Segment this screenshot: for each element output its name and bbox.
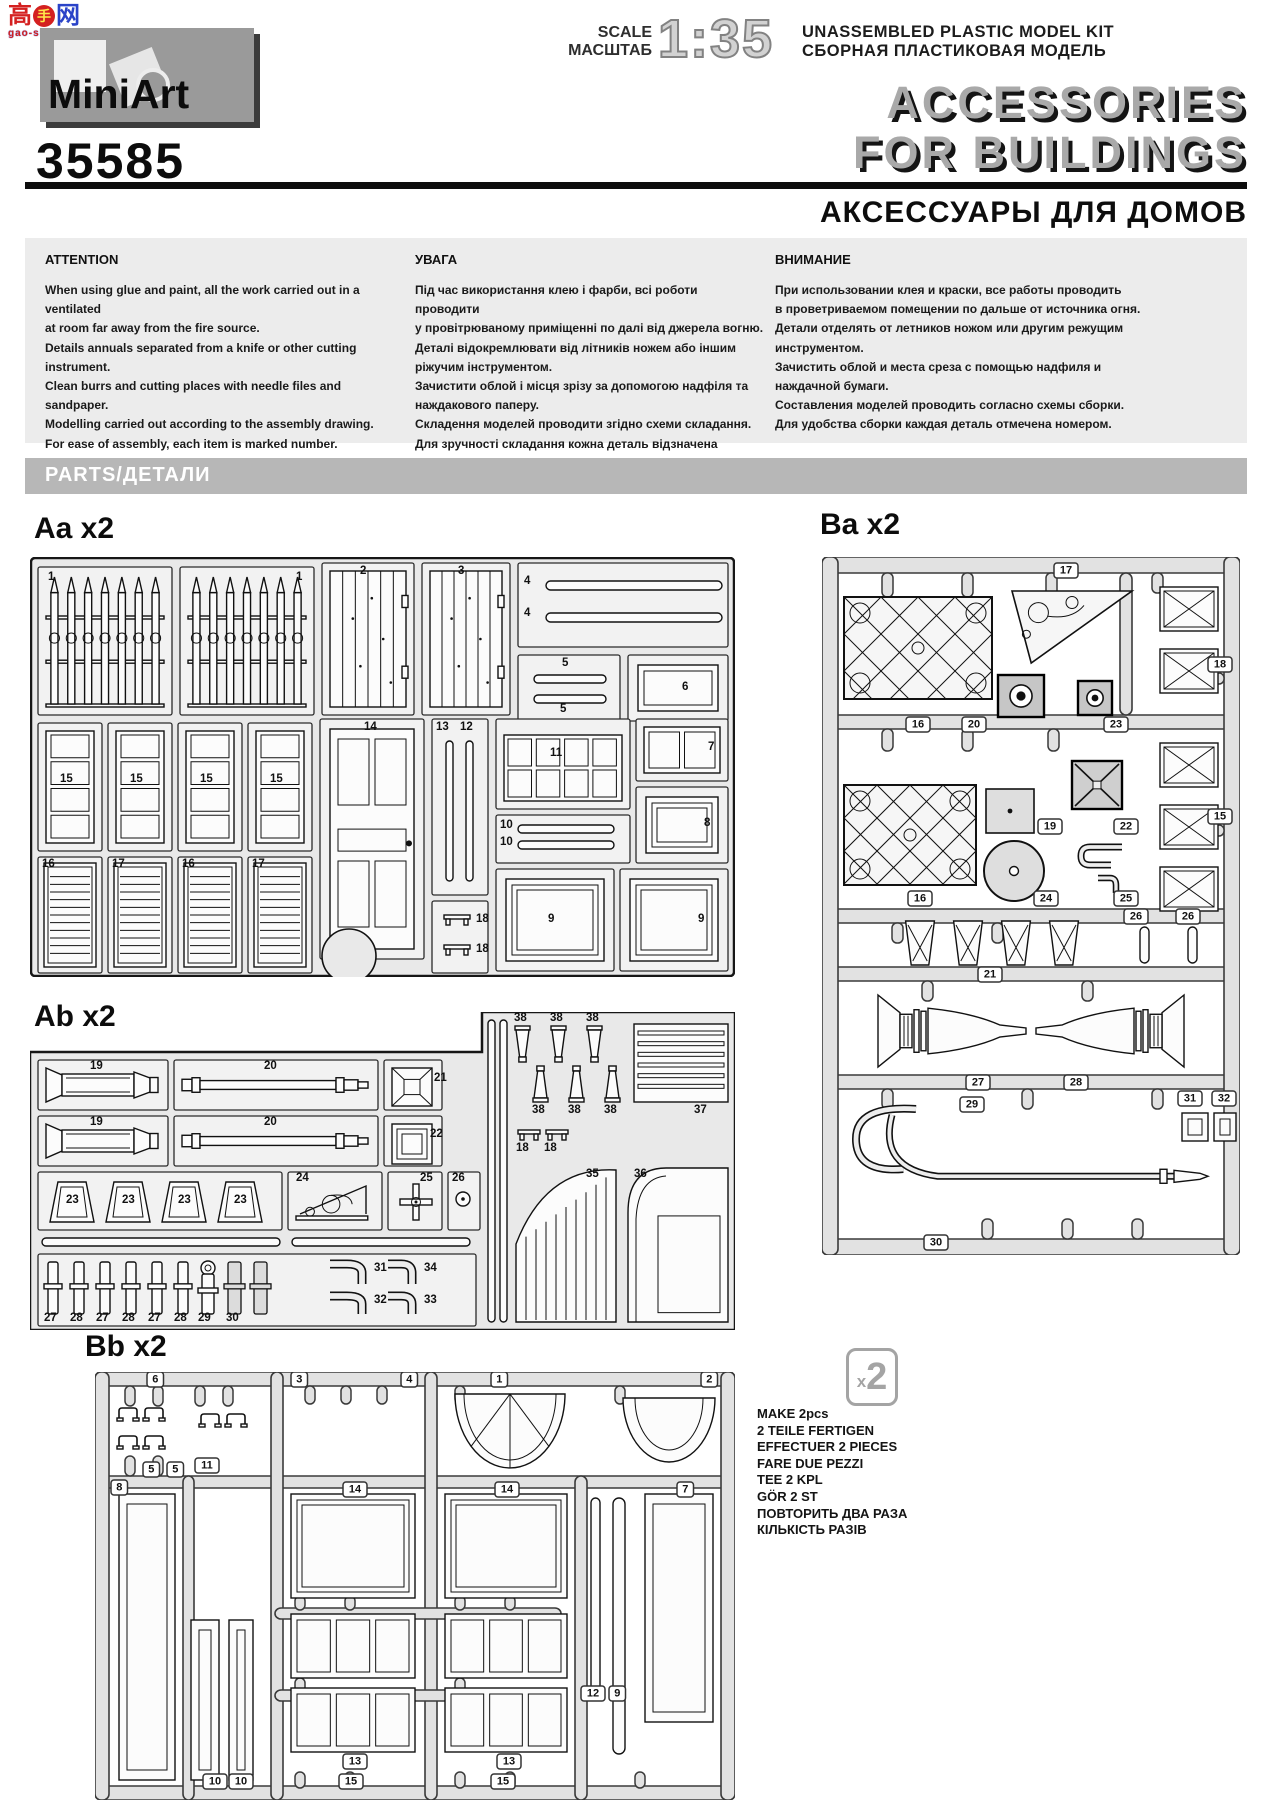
part-number-23: 23 (234, 1194, 247, 1206)
svg-text:17: 17 (1060, 565, 1072, 577)
stub (1022, 1089, 1033, 1109)
svg-text:13: 13 (436, 721, 449, 733)
part-number-8: 8 (704, 817, 711, 829)
svg-text:25: 25 (420, 1172, 433, 1184)
svg-text:19: 19 (90, 1060, 103, 1072)
part-number-28: 28 (174, 1312, 187, 1324)
svg-text:33: 33 (424, 1294, 437, 1306)
ring (456, 1192, 470, 1206)
attention-column-1: УВАГАПід час використання клею і фарби, … (415, 252, 765, 473)
sqx (392, 1068, 432, 1106)
svg-text:28: 28 (1070, 1077, 1082, 1089)
svg-text:14: 14 (349, 1484, 362, 1496)
xbk (906, 921, 935, 965)
part-number-4: 4 (401, 1372, 418, 1387)
kit-type: UNASSEMBLED PLASTIC MODEL KIT СБОРНАЯ ПЛ… (802, 23, 1114, 61)
part-number-22: 22 (1114, 819, 1138, 834)
vstrip (613, 1498, 625, 1754)
stub (1132, 1219, 1143, 1239)
watermark-thumb-icon: 手 (33, 5, 55, 27)
svg-text:1: 1 (48, 571, 55, 583)
panel3 (445, 1614, 567, 1678)
note-line: FARE DUE PEZZI (757, 1456, 907, 1473)
stub (125, 1386, 135, 1406)
attention-column-0: ATTENTIONWhen using glue and paint, all … (45, 252, 385, 454)
strip (534, 695, 606, 703)
part-number-10: 10 (500, 836, 513, 848)
clip (143, 1436, 165, 1449)
svg-text:9: 9 (614, 1688, 620, 1700)
cell (518, 563, 728, 647)
sprue-label-Bb: Bb x2 (85, 1330, 167, 1364)
part-number-22: 22 (430, 1128, 443, 1140)
part-number-11: 11 (550, 747, 563, 759)
header-divider (25, 182, 1247, 189)
run (721, 1372, 735, 1800)
part-number-19: 19 (90, 1060, 103, 1072)
part-number-35: 35 (586, 1168, 599, 1180)
svg-text:38: 38 (586, 1012, 599, 1024)
part-number-21: 21 (978, 967, 1002, 982)
xbk (1050, 921, 1079, 965)
svg-text:13: 13 (349, 1756, 361, 1768)
svg-text:9: 9 (548, 913, 554, 925)
dsq (998, 675, 1044, 717)
cell (496, 815, 630, 863)
note-line: TEE 2 KPL (757, 1472, 907, 1489)
make-quantity-badge: x 2 (846, 1348, 898, 1406)
instruction-sheet-page: 高手网 gao-shou.com MiniArt 35585 SCALE МАС… (0, 0, 1275, 1800)
svg-text:15: 15 (60, 773, 73, 785)
svg-text:3: 3 (458, 565, 464, 577)
svg-text:16: 16 (914, 893, 926, 905)
svg-text:30: 30 (226, 1312, 239, 1324)
run (822, 1239, 1240, 1255)
part-number-32: 32 (374, 1294, 387, 1306)
louver (184, 863, 236, 967)
hook (1081, 847, 1122, 865)
svg-text:9: 9 (698, 913, 704, 925)
clip (199, 1414, 221, 1427)
part-number-15: 15 (270, 773, 283, 785)
part-number-37: 37 (694, 1104, 707, 1116)
arch36 (628, 1168, 728, 1322)
svg-text:16: 16 (42, 858, 55, 870)
part-number-16: 16 (42, 858, 55, 870)
svg-text:27: 27 (44, 1312, 57, 1324)
part-number-3: 3 (458, 565, 464, 577)
part-number-23: 23 (178, 1194, 191, 1206)
stub (341, 1386, 351, 1404)
svg-text:38: 38 (604, 1104, 617, 1116)
part-number-28: 28 (1064, 1075, 1088, 1090)
stub (1082, 981, 1093, 1001)
xpanel (1160, 743, 1218, 787)
svg-text:26: 26 (1182, 911, 1194, 923)
cell (432, 719, 488, 895)
stub (962, 573, 973, 597)
sprue-diagram-Ba: 1716202318151619242225262621272829313230 (822, 557, 1240, 1255)
badge-2: 2 (866, 1358, 887, 1396)
run (822, 1075, 1240, 1089)
svg-text:4: 4 (406, 1374, 413, 1386)
part-number-34: 34 (424, 1262, 437, 1274)
part-number-19: 19 (90, 1116, 103, 1128)
part-number-3: 3 (291, 1372, 308, 1387)
part-number-21: 21 (434, 1072, 447, 1084)
svg-text:13: 13 (503, 1756, 515, 1768)
part-number-28: 28 (70, 1312, 83, 1324)
svg-text:17: 17 (252, 858, 265, 870)
svg-text:2: 2 (706, 1374, 712, 1386)
svg-text:24: 24 (296, 1172, 309, 1184)
svg-text:29: 29 (966, 1099, 978, 1111)
planks (330, 571, 408, 707)
part-number-15: 15 (130, 773, 143, 785)
svg-text:22: 22 (430, 1128, 443, 1140)
part-number-1: 1 (296, 571, 303, 583)
stub (1048, 729, 1059, 751)
circle (322, 929, 376, 977)
scale-value: 1:35 (658, 8, 774, 70)
vstrip (488, 1020, 495, 1322)
part-number-23: 23 (66, 1194, 79, 1206)
scale-label-en: SCALE (552, 24, 652, 42)
svg-text:1: 1 (296, 571, 303, 583)
svg-text:7: 7 (682, 1484, 688, 1496)
svg-text:10: 10 (209, 1776, 221, 1788)
svg-text:2: 2 (360, 565, 366, 577)
run (822, 967, 1240, 981)
clip (117, 1408, 139, 1421)
note-line: EFFECTUER 2 PIECES (757, 1439, 907, 1456)
svg-text:12: 12 (587, 1688, 599, 1700)
part-number-31: 31 (1178, 1091, 1202, 1106)
part-number-27: 27 (148, 1312, 161, 1324)
run (425, 1372, 437, 1800)
svg-text:23: 23 (66, 1194, 79, 1206)
svg-text:16: 16 (912, 719, 924, 731)
part-number-5: 5 (560, 703, 567, 715)
svg-text:11: 11 (550, 747, 563, 759)
strip (292, 1238, 470, 1246)
attention-column-2: ВНИМАНИЕПри использовании клея и краски,… (775, 252, 1235, 435)
stub (892, 923, 903, 943)
kit-type-en: UNASSEMBLED PLASTIC MODEL KIT (802, 23, 1114, 42)
rod (889, 1115, 1208, 1183)
part-number-17: 17 (112, 858, 125, 870)
svg-text:15: 15 (345, 1776, 357, 1788)
part-number-18: 18 (476, 913, 489, 925)
hookstub (1098, 878, 1116, 893)
part-number-29: 29 (198, 1312, 211, 1324)
part-number-11: 11 (195, 1458, 219, 1473)
part-number-13: 13 (343, 1754, 367, 1769)
svg-text:31: 31 (1184, 1093, 1196, 1105)
svg-text:17: 17 (112, 858, 125, 870)
vstrip (466, 741, 473, 881)
page-title-line1: ACCESSORIES (886, 80, 1247, 125)
svg-text:5: 5 (562, 657, 569, 669)
svg-text:8: 8 (704, 817, 711, 829)
svg-text:30: 30 (930, 1237, 942, 1249)
scale-label-ru: МАСШТАБ (552, 42, 652, 60)
part-number-31: 31 (374, 1262, 387, 1274)
sprue-label-Ba: Ba x2 (820, 508, 900, 542)
stub (195, 1386, 205, 1406)
svg-text:23: 23 (122, 1194, 135, 1206)
stub (1062, 1219, 1073, 1239)
cell (518, 655, 620, 721)
part-number-28: 28 (122, 1312, 135, 1324)
lattice (822, 597, 1168, 699)
stub (992, 923, 1003, 943)
stub (125, 1456, 135, 1476)
svg-text:18: 18 (476, 913, 489, 925)
part-number-4: 4 (524, 607, 531, 619)
stub (305, 1386, 315, 1404)
window (445, 1494, 567, 1598)
louver (254, 863, 306, 967)
svg-text:19: 19 (1044, 821, 1056, 833)
part-number-38: 38 (532, 1104, 545, 1116)
stub (153, 1386, 163, 1406)
strip (546, 613, 722, 622)
part-number-2: 2 (360, 565, 366, 577)
svg-text:18: 18 (476, 943, 489, 955)
panel3 (291, 1614, 415, 1678)
part-number-29: 29 (960, 1097, 984, 1112)
part-number-6: 6 (147, 1372, 164, 1387)
part-number-18: 18 (544, 1142, 557, 1154)
part-number-38: 38 (568, 1104, 581, 1116)
part-number-18: 18 (1208, 657, 1232, 672)
corner (1012, 591, 1132, 663)
note-line: MAKE 2pcs (757, 1406, 907, 1423)
part-number-16: 16 (908, 891, 932, 906)
svg-text:27: 27 (96, 1312, 109, 1324)
vstrip (591, 1498, 600, 1694)
svg-text:12: 12 (460, 721, 473, 733)
part-number-27: 27 (966, 1075, 990, 1090)
window (630, 879, 718, 961)
svg-text:19: 19 (90, 1116, 103, 1128)
run (822, 557, 838, 1255)
part-number-16: 16 (906, 717, 930, 732)
part-number-1: 1 (491, 1372, 508, 1387)
part-number-14: 14 (495, 1482, 519, 1497)
part-number-7: 7 (677, 1482, 694, 1497)
vstrip (1140, 927, 1149, 963)
svg-text:18: 18 (544, 1142, 557, 1154)
sprue-diagram-Ab: 1920211920222323232324252631343233272827… (30, 1012, 735, 1330)
part-number-15: 15 (339, 1774, 363, 1789)
cell (432, 901, 488, 973)
part-number-5: 5 (562, 657, 569, 669)
panel3 (291, 1688, 415, 1752)
svg-text:15: 15 (270, 773, 283, 785)
svg-text:35: 35 (586, 1168, 599, 1180)
part-number-26: 26 (1176, 909, 1200, 924)
pipe (182, 1134, 368, 1149)
page-title-line2: FOR BUILDINGS (853, 130, 1247, 175)
svg-text:38: 38 (568, 1104, 581, 1116)
stub (377, 1386, 387, 1404)
run (271, 1372, 283, 1800)
part-number-23: 23 (1104, 717, 1128, 732)
part-number-30: 30 (924, 1235, 948, 1250)
svg-text:15: 15 (497, 1776, 509, 1788)
svg-text:15: 15 (130, 773, 143, 785)
svg-text:29: 29 (198, 1312, 211, 1324)
clip (117, 1436, 139, 1449)
strip (518, 825, 614, 833)
badge-x: x (857, 1372, 866, 1392)
curve (856, 1109, 916, 1170)
run (822, 557, 1240, 573)
parts-section-label: PARTS/ДЕТАЛИ (45, 464, 211, 487)
part-number-20: 20 (264, 1116, 277, 1128)
scale-label: SCALE МАСШТАБ (552, 24, 652, 60)
attention-heading: ATTENTION (45, 252, 385, 267)
xpanel (1160, 867, 1218, 911)
door (330, 729, 414, 949)
part-number-24: 24 (1034, 891, 1058, 906)
svg-text:26: 26 (1130, 911, 1142, 923)
part-number-6: 6 (682, 681, 688, 693)
svg-text:21: 21 (434, 1072, 447, 1084)
part-number-38: 38 (604, 1104, 617, 1116)
part-number-15: 15 (491, 1774, 515, 1789)
svg-text:16: 16 (182, 858, 195, 870)
fan (455, 1394, 565, 1468)
attention-heading: ВНИМАНИЕ (775, 252, 1235, 267)
attention-box: ATTENTIONWhen using glue and paint, all … (25, 238, 1247, 443)
part-number-13: 13 (436, 721, 449, 733)
part-number-36: 36 (634, 1168, 647, 1180)
part-number-20: 20 (264, 1060, 277, 1072)
part-number-5: 5 (167, 1462, 184, 1477)
part-number-25: 25 (420, 1172, 433, 1184)
part-number-10: 10 (229, 1774, 253, 1789)
xbk (1002, 921, 1031, 965)
svg-text:6: 6 (682, 681, 688, 693)
note-line: GÖR 2 ST (757, 1489, 907, 1506)
svg-text:23: 23 (234, 1194, 247, 1206)
part-number-14: 14 (343, 1482, 367, 1497)
svg-text:36: 36 (634, 1168, 647, 1180)
part-number-38: 38 (550, 1012, 563, 1024)
louver (114, 863, 166, 967)
svg-text:38: 38 (514, 1012, 527, 1024)
attention-text: Під час використання клею і фарби, всі р… (415, 281, 765, 473)
shutter4 (46, 731, 94, 843)
part-number-14: 14 (364, 721, 377, 733)
svg-text:23: 23 (178, 1194, 191, 1206)
svg-text:27: 27 (148, 1312, 161, 1324)
tpanel (119, 1494, 175, 1780)
svg-text:7: 7 (708, 741, 714, 753)
logo-wordmark: MiniArt (48, 71, 189, 118)
part-number-19: 19 (1038, 819, 1062, 834)
svg-text:28: 28 (70, 1312, 83, 1324)
gsq (986, 789, 1034, 833)
svg-text:15: 15 (200, 773, 213, 785)
part-number-7: 7 (708, 741, 714, 753)
sqf (392, 1124, 432, 1164)
svg-text:34: 34 (424, 1262, 437, 1274)
part-number-30: 30 (226, 1312, 239, 1324)
part-number-4: 4 (524, 575, 531, 587)
svg-text:10: 10 (500, 836, 513, 848)
part-number-15: 15 (60, 773, 73, 785)
svg-text:15: 15 (1214, 811, 1226, 823)
vstrip (500, 1020, 507, 1322)
part-number-9: 9 (609, 1686, 626, 1701)
tpanel (645, 1494, 713, 1722)
part-number-2: 2 (701, 1372, 718, 1387)
attention-text: При использовании клея и краски, все раб… (775, 281, 1235, 435)
svg-text:5: 5 (172, 1464, 178, 1476)
part-number-12: 12 (581, 1686, 605, 1701)
vstrip (1188, 927, 1197, 963)
window (638, 665, 718, 711)
part-number-26: 26 (452, 1172, 465, 1184)
part-number-8: 8 (111, 1480, 128, 1495)
part-number-27: 27 (96, 1312, 109, 1324)
part-number-26: 26 (1124, 909, 1148, 924)
svg-text:20: 20 (968, 719, 980, 731)
run (95, 1372, 109, 1800)
svg-text:5: 5 (148, 1464, 154, 1476)
shutter4 (116, 731, 164, 843)
watermark-text: 高 (8, 2, 32, 29)
baluster (1036, 995, 1184, 1067)
part-number-12: 12 (460, 721, 473, 733)
svg-text:24: 24 (1040, 893, 1053, 905)
note-line: ПОВТОРИТЬ ДВА РАЗА (757, 1506, 907, 1523)
band (623, 1398, 715, 1462)
strip (534, 675, 606, 683)
svg-text:4: 4 (524, 607, 531, 619)
svg-text:25: 25 (1120, 893, 1132, 905)
xbk (954, 921, 983, 965)
part-number-24: 24 (296, 1172, 309, 1184)
stub (882, 573, 893, 597)
sprue-diagram-Aa: 1123445561515151514131211101078991617161… (30, 557, 735, 977)
window (1214, 1113, 1236, 1141)
sprue-label-Aa: Aa x2 (34, 512, 114, 546)
part-number-18: 18 (516, 1142, 529, 1154)
stub (455, 1772, 465, 1788)
svg-text:6: 6 (152, 1374, 158, 1386)
stub (223, 1386, 233, 1406)
part-number-23: 23 (122, 1194, 135, 1206)
part-number-16: 16 (182, 858, 195, 870)
svg-text:3: 3 (296, 1374, 302, 1386)
svg-text:10: 10 (235, 1776, 247, 1788)
kit-type-ru: СБОРНАЯ ПЛАСТИКОВАЯ МОДЕЛЬ (802, 42, 1114, 61)
svg-text:27: 27 (972, 1077, 984, 1089)
stub (295, 1772, 305, 1788)
xpanel (1160, 587, 1218, 631)
sprue-diagram-Bb: 634121155814147129131310101515 (95, 1372, 735, 1800)
shutter4 (186, 731, 234, 843)
svg-text:10: 10 (500, 819, 513, 831)
part-number-25: 25 (1114, 891, 1138, 906)
planks (430, 571, 504, 707)
clip (143, 1408, 165, 1421)
